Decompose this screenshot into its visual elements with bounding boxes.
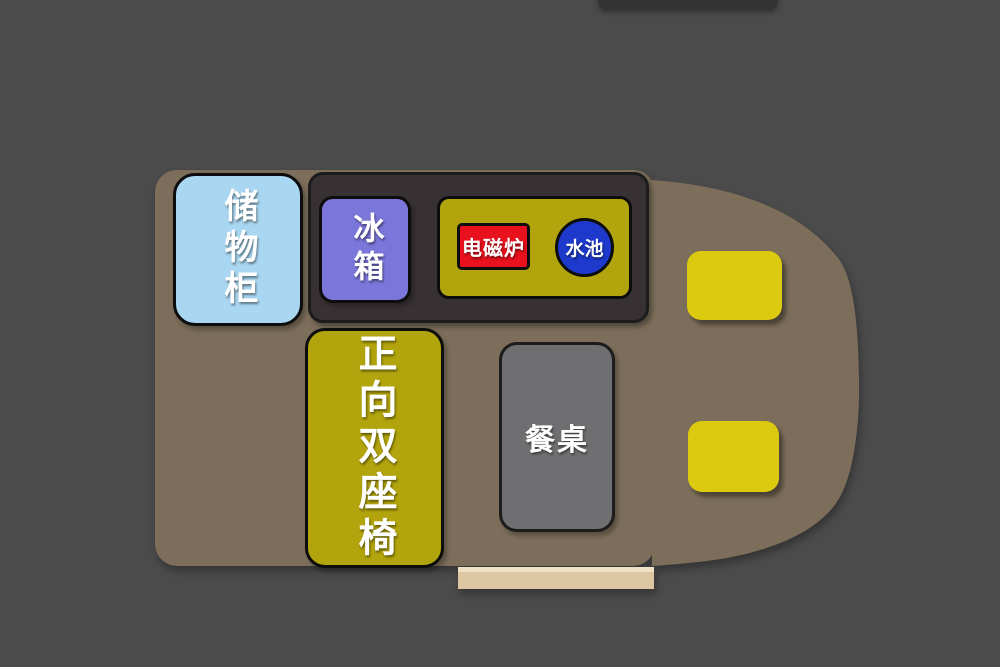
cab-seat-driver (688, 421, 779, 492)
forward-double-seat: 正向双座椅 (305, 328, 444, 568)
storage-cabinet-label: 储物柜 (221, 188, 255, 311)
entry-step-highlight (458, 567, 654, 572)
dining-table: 餐桌 (499, 342, 615, 532)
rv-floorplan: 储物柜 冰箱 电磁炉 水池 正向双座椅 餐桌 (0, 0, 1000, 667)
van-base-layer (0, 0, 1000, 667)
van-front-nose-shape (652, 180, 859, 566)
storage-cabinet: 储物柜 (173, 173, 303, 326)
sink: 水池 (555, 218, 614, 277)
induction-cooker-label: 电磁炉 (462, 232, 525, 261)
top-edge-bar (598, 0, 778, 9)
dining-table-label: 餐桌 (525, 415, 589, 459)
forward-double-seat-label: 正向双座椅 (355, 333, 394, 563)
fridge: 冰箱 (319, 196, 411, 303)
cab-seat-passenger (687, 251, 782, 320)
fridge-label: 冰箱 (350, 212, 381, 288)
induction-cooker: 电磁炉 (457, 223, 530, 270)
sink-label: 水池 (565, 234, 603, 261)
